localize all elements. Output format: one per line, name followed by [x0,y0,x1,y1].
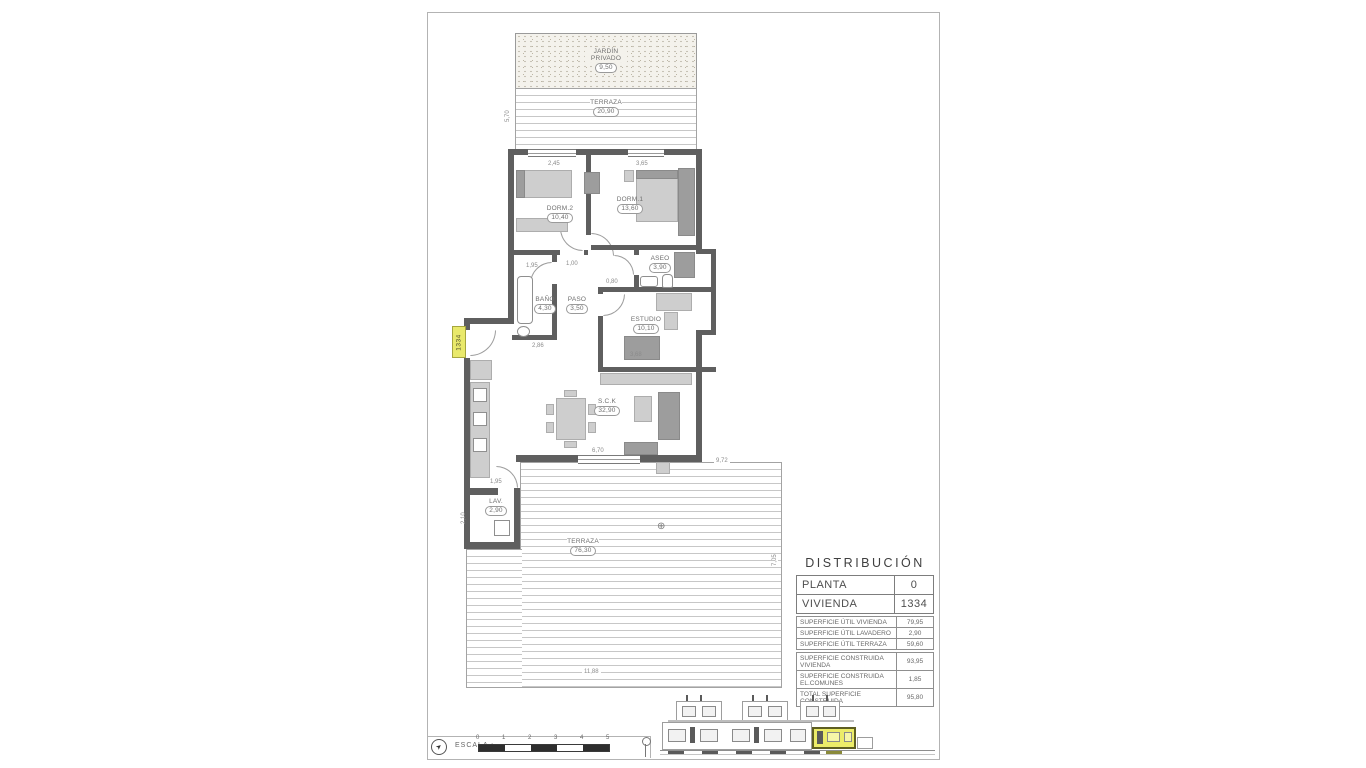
room-name: JARDÍN PRIVADO [585,48,627,62]
scale-tick: 1 [502,735,505,741]
scale-tick: 0 [476,735,479,741]
wall-segment [514,488,520,546]
north-arrow-icon: ➤ [431,739,447,755]
door-opening [634,255,639,275]
ground-shadow [702,751,718,754]
planta-value: 0 [895,576,934,595]
dimension: 2,45 [548,161,560,167]
roof-mark [752,695,754,701]
room-label-terraza-main: TERRAZA 76,30 [560,538,606,556]
elevation-window [748,706,762,717]
room-name: S.C.K [598,398,616,405]
dimension: 2,10 [461,512,467,524]
chair [546,422,554,433]
terrace-main-left [466,549,522,688]
table-row: SUPERFICIE ÚTIL TERRAZA 59,60 [797,639,934,650]
furniture-wardrobe [678,168,695,236]
dimension: 9,72 [714,458,730,464]
superficie-construida-table: SUPERFICIE CONSTRUIDA VIVIENDA 93,95 SUP… [796,652,934,707]
elevation-window [700,729,718,742]
room-area: 20,90 [593,107,618,117]
room-name: ESTUDIO [631,316,661,323]
drain-symbol: ⊕ [657,521,665,532]
room-name: LAV. [489,498,503,505]
furniture-pillow [516,170,525,198]
wall-segment [464,542,520,549]
room-name: DORM.1 [617,196,643,203]
room-label-aseo: ASEO 3,90 [642,255,678,273]
dimension: 7,05 [772,554,778,566]
room-label-bano: BAÑO 4,30 [530,296,560,314]
wall-segment [696,149,702,254]
room-name: TERRAZA [590,99,622,106]
roof-mark [686,695,688,701]
scale-segment [583,745,609,751]
window [528,149,576,157]
ground-shadow [804,751,820,754]
kitchen-counter [600,373,692,385]
dimension: 1,95 [526,263,538,269]
level-marker-stick [645,744,646,757]
terrace-main [520,462,782,688]
row-value: 95,80 [897,689,934,707]
row-label: SUPERFICIE ÚTIL LAVADERO [797,628,897,639]
planta-vivienda-table: PLANTA 0 VIVIENDA 1334 [796,575,934,614]
room-label-estudio: ESTUDIO 10,10 [624,316,668,334]
sliding-panel [656,462,670,474]
roof-mark [766,695,768,701]
ground-shadow [770,751,786,754]
furniture-nightstand [624,170,634,182]
kitchen-appliance [473,412,487,426]
wall-segment [711,249,716,335]
scale-tick: 5 [606,735,609,741]
room-area: 3,50 [566,304,587,314]
row-label: SUPERFICIE ÚTIL TERRAZA [797,639,897,650]
row-value: 93,95 [897,653,934,671]
row-value: 2,90 [897,628,934,639]
row-value: 79,95 [897,617,934,628]
elevation-window [764,729,782,742]
elevation-window [806,706,819,717]
dimension: 11,88 [582,669,601,675]
chair [564,441,577,448]
sink-fixture [517,326,530,337]
roof-mark [700,695,702,701]
scale-segment [505,745,531,751]
room-label-dorm2: DORM.2 10,40 [540,205,580,223]
elevation-door [690,727,695,743]
dimension: 0,80 [606,279,618,285]
wall-segment [696,330,702,462]
row-label: SUPERFICIE CONSTRUIDA VIVIENDA [797,653,897,671]
sofa-chaise [624,442,658,455]
chair [546,404,554,415]
room-label-dorm1: DORM.1 13,60 [610,196,650,214]
door-opening [552,262,557,284]
ground-shadow [826,751,842,754]
elevation-door [754,727,759,743]
elevation-window [702,706,716,717]
furniture-pillow [636,170,678,179]
furniture-desk [656,293,692,311]
ground-line [660,754,935,755]
wall-segment [508,149,514,324]
scale-tick: 2 [528,735,531,741]
furniture-closet [584,172,600,194]
room-name: TERRAZA [567,538,599,545]
room-label-jardin: JARDÍN PRIVADO 9,50 [585,48,627,73]
scale-segment [479,745,505,751]
room-area: 13,60 [617,204,642,214]
elevation-window [823,706,836,717]
elevation-window [668,729,686,742]
table-row: SUPERFICIE ÚTIL VIVIENDA 79,95 [797,617,934,628]
vivienda-value: 1334 [895,595,934,614]
scale-tick: 3 [554,735,557,741]
roof-mark [812,695,814,701]
elevation-window [844,732,852,742]
ground-shadow [668,751,684,754]
dimension: 1,95 [490,479,502,485]
row-label: SUPERFICIE CONSTRUIDA EL.COMUNES [797,671,897,689]
elevation-window [768,706,782,717]
footer-divider [427,736,650,737]
room-name: BAÑO [535,296,554,303]
dimension: 1,00 [566,261,578,267]
room-name: PASO [568,296,586,303]
scale-segment [531,745,557,751]
room-name: DORM.2 [547,205,573,212]
table-row: SUPERFICIE CONSTRUIDA VIVIENDA 93,95 [797,653,934,671]
coffee-table [634,396,652,422]
terrace-top [515,88,697,151]
room-label-sck: S.C.K 32,90 [590,398,624,416]
wall-segment [598,367,716,372]
dimension: 3,65 [636,161,648,167]
room-label-lav: LAV. 2,90 [482,498,510,516]
room-area: 76,30 [570,546,595,556]
table-row: PLANTA 0 [797,576,934,595]
planta-label: PLANTA [797,576,895,595]
room-area: 2,90 [485,506,506,516]
ground-shadow [736,751,752,754]
vivienda-label: VIVIENDA [797,595,895,614]
window [628,149,664,157]
toilet-fixture [662,274,673,288]
chair [564,390,577,397]
scale-segment [557,745,583,751]
table-row: SUPERFICIE ÚTIL LAVADERO 2,90 [797,628,934,639]
dimension: 2,86 [532,343,544,349]
room-area: 10,40 [547,213,572,223]
north-glyph: ➤ [434,742,444,752]
dimension: 5,70 [505,110,511,122]
scale-bar [478,744,610,752]
room-area: 9,50 [595,63,616,73]
unit-tag: 1334 [452,326,466,358]
kitchen-appliance [473,388,487,402]
elevation-window [732,729,750,742]
sink-fixture [640,276,658,287]
room-area: 3,90 [649,263,670,273]
elevation-window [790,729,806,742]
kitchen-cabinets [470,360,492,380]
scale-tick: 4 [580,735,583,741]
row-value: 59,60 [897,639,934,650]
unit-tag-number: 1334 [456,334,463,350]
wall-segment [586,155,591,235]
roof-mark [826,695,828,701]
washing-machine [494,520,510,536]
elevation-window [682,706,696,717]
distribucion-title: DISTRIBUCIÓN [795,556,935,570]
room-label-paso: PASO 3,50 [560,296,594,314]
table-row: VIVIENDA 1334 [797,595,934,614]
elevation-door [817,731,823,744]
room-area: 10,10 [633,324,658,334]
row-label: SUPERFICIE ÚTIL VIVIENDA [797,617,897,628]
room-area: 4,30 [534,304,555,314]
page: JARDÍN PRIVADO 9,50 TERRAZA 20,90 5,70 T… [0,0,1366,768]
row-value: 1,85 [897,671,934,689]
table-row: SUPERFICIE CONSTRUIDA EL.COMUNES 1,85 [797,671,934,689]
elevation-step [857,737,873,749]
dimension: 3,68 [630,352,642,358]
elevation-window [827,732,840,742]
level-marker-icon [642,737,651,746]
superficie-util-table: SUPERFICIE ÚTIL VIVIENDA 79,95 SUPERFICI… [796,616,934,650]
wall-segment [598,287,716,292]
sofa [658,392,680,440]
wall-segment [464,318,514,324]
chair [588,422,596,433]
room-label-terraza-top: TERRAZA 20,90 [583,99,629,117]
dimension: 6,70 [592,448,604,454]
room-area: 32,90 [594,406,619,416]
wall-segment [591,245,696,250]
dining-table [556,398,586,440]
terrace-glass-door [578,455,640,464]
room-name: ASEO [651,255,670,262]
kitchen-appliance [473,438,487,452]
